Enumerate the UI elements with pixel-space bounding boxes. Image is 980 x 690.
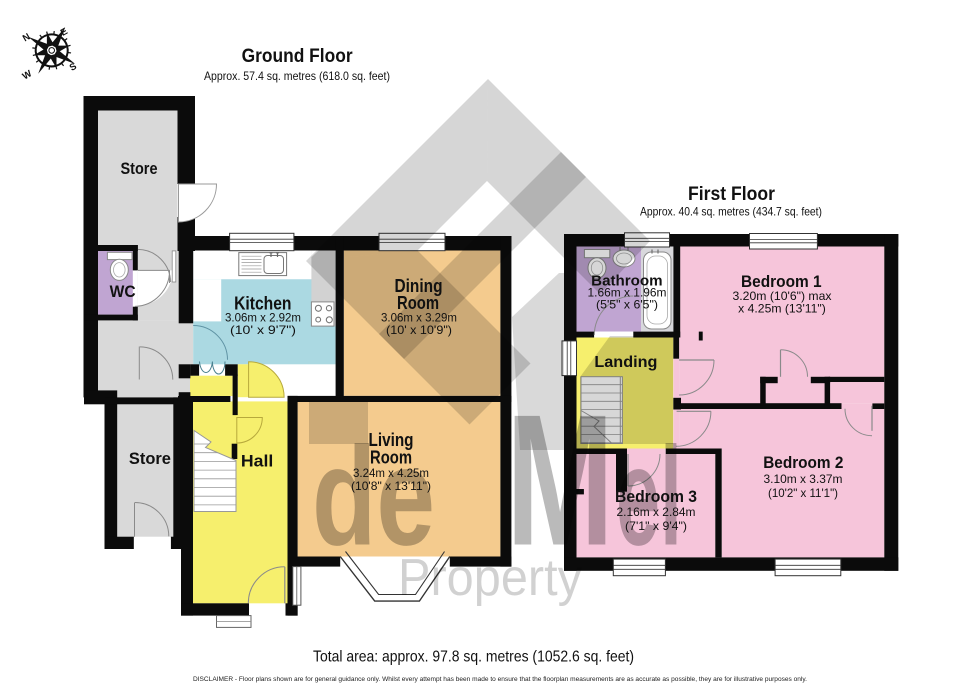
svg-text:Total area: approx. 97.8 sq. m: Total area: approx. 97.8 sq. metres (105… (313, 649, 634, 666)
svg-text:Property: Property (398, 549, 582, 607)
svg-text:(10'2" x 11'1"): (10'2" x 11'1") (768, 486, 838, 500)
svg-text:Room: Room (370, 448, 412, 468)
svg-text:3.10m x 3.37m: 3.10m x 3.37m (764, 472, 843, 486)
svg-text:First Floor: First Floor (688, 184, 776, 205)
svg-text:Store: Store (129, 449, 171, 468)
svg-text:DISCLAIMER - Floor plans sho: DISCLAIMER - Floor plans shown are for g… (193, 676, 807, 683)
svg-text:x 4.25m (13'11"): x 4.25m (13'11") (738, 301, 826, 315)
svg-text:Landing: Landing (594, 354, 657, 371)
svg-text:2.16m x 2.84m: 2.16m x 2.84m (617, 505, 696, 519)
svg-text:(10' x 10'9"): (10' x 10'9") (386, 323, 452, 337)
svg-text:Bedroom 3: Bedroom 3 (615, 488, 697, 506)
svg-text:Hall: Hall (241, 452, 273, 471)
svg-text:3.24m x 4.25m: 3.24m x 4.25m (353, 466, 429, 480)
svg-text:Store: Store (121, 159, 158, 178)
svg-text:Ground Floor: Ground Floor (242, 46, 354, 67)
svg-text:Bedroom 2: Bedroom 2 (763, 454, 843, 472)
svg-text:(10'8" x 13'11"): (10'8" x 13'11") (351, 479, 431, 493)
svg-text:(7'1" x 9'4"): (7'1" x 9'4") (625, 519, 687, 533)
svg-text:W: W (21, 68, 34, 82)
svg-text:Approx. 57.4 sq. metres (618.0: Approx. 57.4 sq. metres (618.0 sq. feet) (204, 69, 390, 83)
svg-text:WC: WC (110, 282, 136, 301)
svg-text:(5'5" x 6'5"): (5'5" x 6'5") (596, 297, 658, 311)
svg-text:S: S (68, 61, 79, 74)
svg-text:N: N (21, 31, 33, 44)
svg-text:Approx. 40.4 sq. metres (434.7: Approx. 40.4 sq. metres (434.7 sq. feet) (640, 205, 822, 219)
svg-text:(10' x 9'7"): (10' x 9'7") (230, 323, 296, 337)
